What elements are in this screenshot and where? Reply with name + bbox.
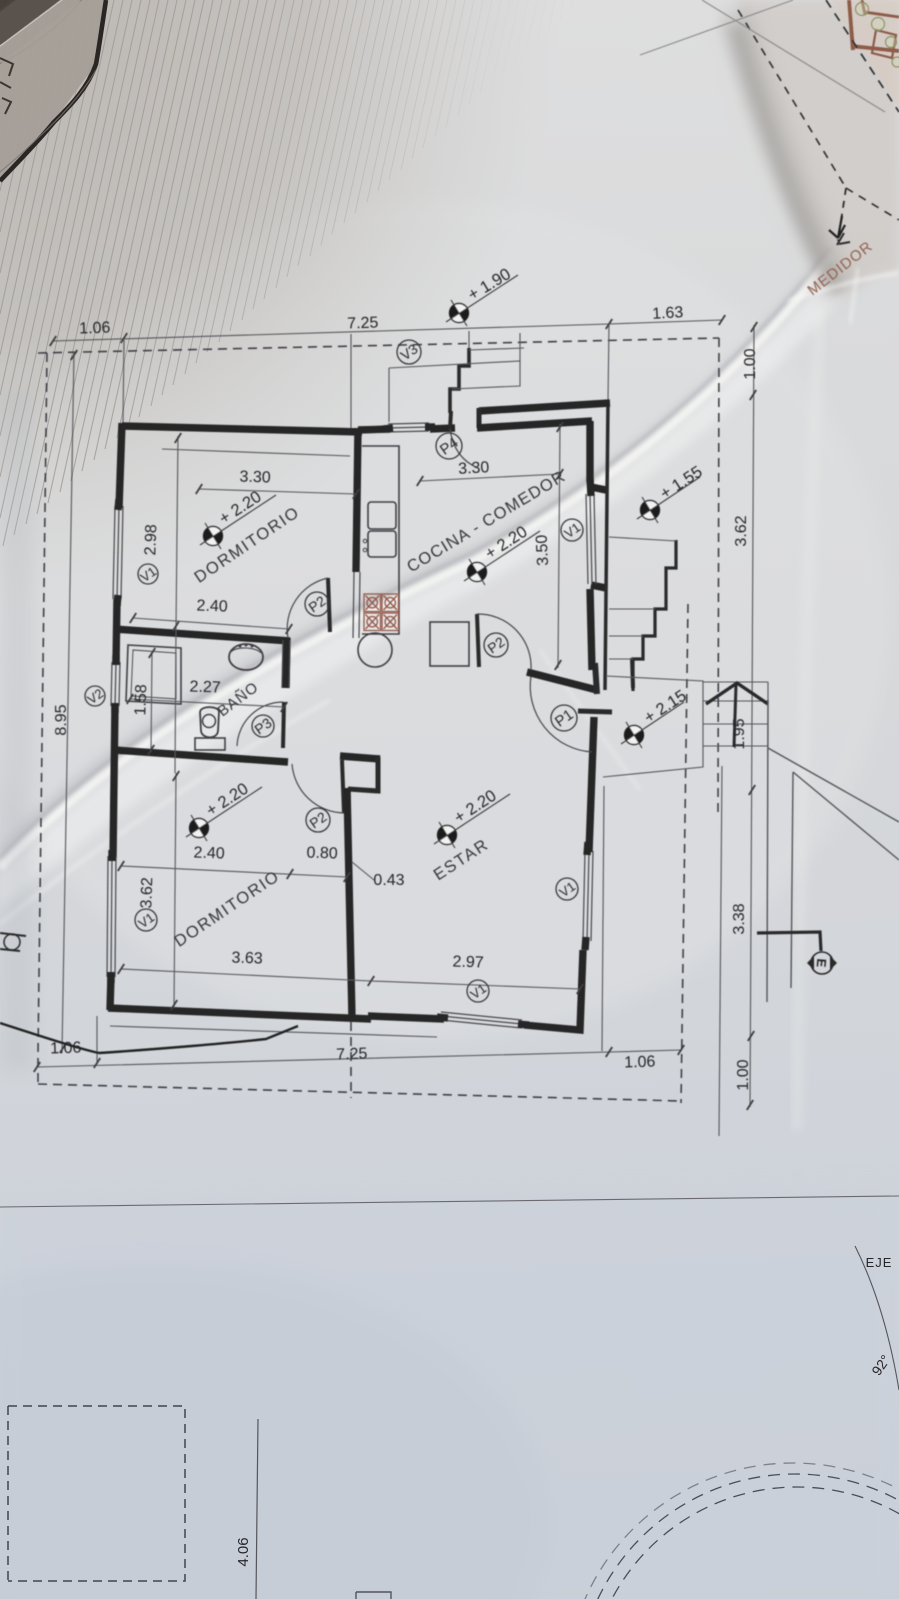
svg-text:1.63: 1.63	[652, 304, 684, 323]
svg-text:7.25: 7.25	[347, 314, 379, 332]
svg-text:0.43: 0.43	[373, 872, 404, 889]
svg-text:1.00: 1.00	[742, 348, 759, 379]
svg-text:3.30: 3.30	[239, 468, 271, 486]
svg-text:1.58: 1.58	[132, 684, 150, 716]
svg-text:2.98: 2.98	[142, 524, 160, 556]
svg-text:4.06: 4.06	[235, 1537, 252, 1566]
svg-text:2.27: 2.27	[189, 678, 221, 696]
svg-text:1.06: 1.06	[50, 1039, 82, 1057]
svg-text:8.95: 8.95	[53, 704, 70, 735]
svg-text:2.40: 2.40	[196, 597, 228, 615]
svg-text:2.97: 2.97	[452, 953, 484, 971]
svg-text:3.50: 3.50	[534, 534, 553, 566]
svg-text:E: E	[814, 958, 830, 968]
svg-text:3.62: 3.62	[138, 877, 156, 909]
svg-text:0.80: 0.80	[306, 844, 338, 862]
svg-text:7.25: 7.25	[336, 1045, 368, 1063]
svg-text:EJE: EJE	[866, 1255, 893, 1270]
svg-text:1.95: 1.95	[731, 718, 748, 749]
svg-text:3.63: 3.63	[231, 949, 263, 967]
svg-text:1.00: 1.00	[735, 1059, 752, 1090]
svg-text:3.30: 3.30	[458, 459, 490, 478]
svg-text:3.62: 3.62	[733, 515, 750, 546]
svg-text:2.40: 2.40	[193, 844, 225, 862]
svg-text:1.06: 1.06	[79, 319, 111, 337]
svg-text:3.38: 3.38	[731, 903, 748, 934]
svg-text:1.06: 1.06	[624, 1053, 656, 1071]
